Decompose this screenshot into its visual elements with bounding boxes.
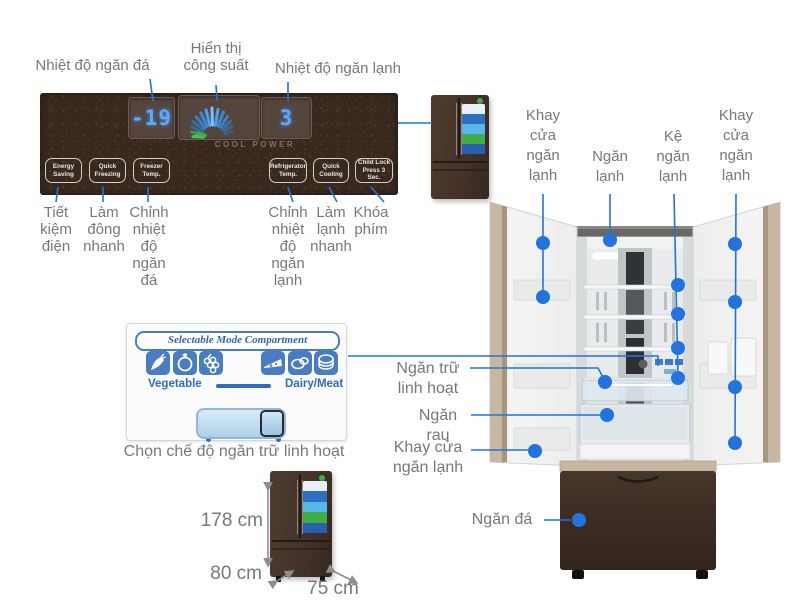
energy-label-icon [319, 475, 325, 481]
fridge-leg [276, 576, 281, 582]
label-energy-saving: Tiết kiệm điện [33, 204, 79, 255]
product-diagram: Nhiệt độ ngăn đá Hiển thị công suất Nhiệ… [0, 0, 800, 600]
fridge-interior [577, 237, 693, 466]
fridge-temp-display: 3 [261, 97, 312, 139]
mode-panel-title: Selectable Mode Compartment [135, 331, 340, 351]
cool-power-meter [178, 95, 260, 140]
door-gap [458, 98, 460, 159]
caption-mode-panel: Chọn chế độ ngăn trữ linh hoạt [108, 442, 360, 462]
power-gauge-icon [179, 96, 259, 139]
quick-cooling-button[interactable]: Quick Cooling [313, 158, 349, 183]
fridge-thumbnail-closed [431, 95, 489, 199]
drawer-handle [272, 548, 329, 550]
fridge-leg [572, 570, 584, 579]
freezer-temp-display: -19 [128, 97, 175, 139]
fridge-left-door[interactable] [490, 202, 577, 466]
callout-freezer: Ngăn đá [466, 510, 538, 530]
control-panel: -19 [40, 93, 398, 195]
refrigerator-temp-button[interactable]: Refrigerator Temp. [269, 158, 307, 183]
callout-flexible-compartment: Ngăn trữ linh hoạt [388, 359, 468, 399]
freezer-drawer[interactable] [560, 461, 716, 579]
drawer-handle [433, 169, 486, 171]
feature-stickers [462, 104, 485, 154]
cool-power-label: COOL POWER [180, 140, 330, 149]
mode-slider-knob[interactable] [260, 410, 284, 437]
energy-saving-button[interactable]: Energy Saving [45, 158, 82, 183]
callout-right-door-tray: Khay cửa ngăn lạnh [708, 106, 764, 186]
door-gap [299, 474, 301, 538]
callout-fridge-shelves: Kệ ngăn lạnh [645, 127, 701, 187]
label-freezer-temp: Chỉnh nhiệt độ ngăn đá [124, 204, 174, 289]
freezer-temp-button[interactable]: Freezer Temp. [133, 158, 170, 183]
callout-fridge-compartment: Ngăn lạnh [582, 147, 638, 187]
carrot-icon [146, 351, 170, 375]
dimension-depth: 75 cm [303, 580, 363, 597]
grapes-icon [199, 351, 223, 375]
drawer-gap [272, 540, 329, 542]
cheese-icon [261, 351, 285, 375]
dimension-width: 80 cm [192, 565, 262, 582]
door-handle [297, 480, 298, 534]
tomato-icon [173, 351, 197, 375]
label-child-lock: Khóa phím [346, 204, 396, 238]
door-handle [456, 103, 457, 155]
energy-label-icon [477, 98, 483, 104]
callout-bottom-door-tray: Khay cửa ngăn lạnh [386, 438, 470, 478]
quick-freezing-button[interactable]: Quick Freezing [89, 158, 126, 183]
ham-slices-icon [314, 351, 338, 375]
door-sticker [708, 342, 728, 374]
door-sticker [731, 338, 756, 376]
scale-bar [216, 384, 271, 388]
vegetable-drawer [580, 404, 690, 459]
fridge-leg [696, 570, 708, 579]
callout-power-display: Hiển thị công suất [175, 40, 257, 74]
callout-fridge-temp-display: Nhiệt độ ngăn lạnh [263, 60, 413, 77]
label-quick-freezing: Làm đông nhanh [78, 204, 130, 255]
dairy-meat-label: Dairy/Meat [285, 378, 343, 390]
feature-stickers [303, 481, 327, 533]
drawer-gap [433, 161, 486, 163]
child-lock-button[interactable]: Child Lock Press 3 Sec. [355, 158, 393, 183]
fridge-right-door[interactable] [693, 202, 780, 466]
vegetable-label: Vegetable [148, 378, 202, 390]
fridge-thumbnail-dimensions [270, 471, 332, 577]
dimension-height: 178 cm [188, 512, 263, 529]
callout-freezer-temp-display: Nhiệt độ ngăn đá [20, 57, 165, 74]
flexible-compartment [582, 380, 688, 401]
callout-left-door-tray: Khay cửa ngăn lạnh [515, 106, 571, 186]
selectable-mode-panel: Selectable Mode Compartment Vegetable Da… [126, 323, 347, 441]
meat-icon [288, 351, 312, 375]
mode-slider[interactable] [196, 408, 286, 439]
